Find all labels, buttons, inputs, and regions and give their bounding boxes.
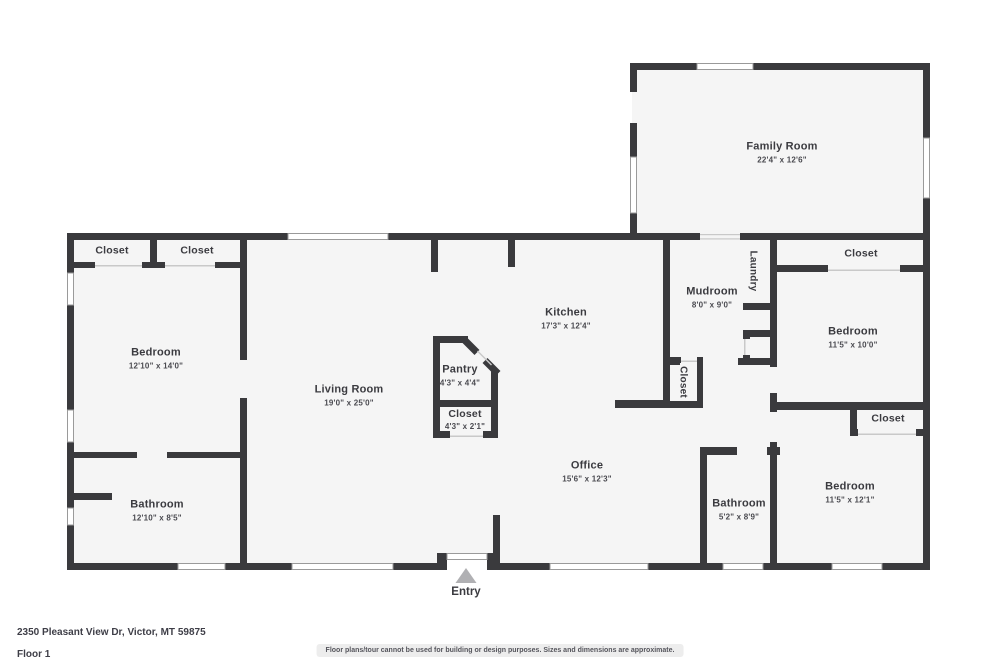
address-text: 2350 Pleasant View Dr, Victor, MT 59875: [17, 627, 206, 638]
disclaimer-text: Floor plans/tour cannot be used for buil…: [317, 644, 684, 657]
room-label-bathroom-left: Bathroom 12'10" x 8'5": [130, 499, 184, 524]
room-label-bathroom-right: Bathroom 5'2" x 8'9": [712, 498, 766, 523]
room-label-closet-top-left-2: Closet: [180, 244, 213, 257]
room-label-mudroom: Mudroom 8'0" x 9'0": [686, 286, 738, 311]
room-label-bedroom-bottom-right: Bedroom 11'5" x 12'1": [825, 481, 875, 506]
room-label-pantry: Pantry 4'3" x 4'4": [440, 364, 480, 389]
entry-label: Entry: [451, 586, 480, 598]
room-label-living-room: Living Room 19'0" x 25'0": [315, 384, 384, 409]
room-label-closet-top-left-1: Closet: [95, 244, 128, 257]
room-label-bedroom-top-right: Bedroom 11'5" x 10'0": [828, 326, 878, 351]
room-label-office: Office 15'6" x 12'3": [562, 460, 612, 485]
room-label-laundry: Laundry: [746, 251, 759, 292]
room-label-closet-pantry: Closet 4'3" x 2'1": [445, 408, 485, 432]
room-label-family-room: Family Room 22'4" x 12'6": [746, 141, 817, 166]
room-label-closet-top-right: Closet: [844, 247, 877, 260]
floor-number-text: Floor 1: [17, 649, 50, 660]
floorplan-page: Family Room 22'4" x 12'6" Closet Closet …: [0, 0, 1000, 667]
room-label-bedroom-left: Bedroom 12'10" x 14'0": [129, 347, 183, 372]
room-label-closet-mudroom: Closet: [676, 366, 689, 398]
room-label-kitchen: Kitchen 17'3" x 12'4": [541, 307, 591, 332]
floor-fill: [67, 63, 930, 571]
room-label-closet-bottom-right: Closet: [871, 412, 904, 425]
